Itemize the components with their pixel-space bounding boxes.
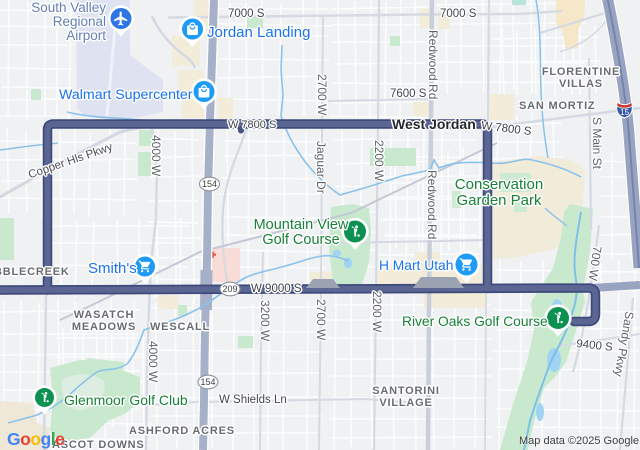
- svg-text:209: 209: [222, 284, 237, 294]
- svg-text:154: 154: [202, 179, 217, 189]
- svg-text:15: 15: [620, 108, 629, 117]
- svg-text:154: 154: [200, 377, 215, 387]
